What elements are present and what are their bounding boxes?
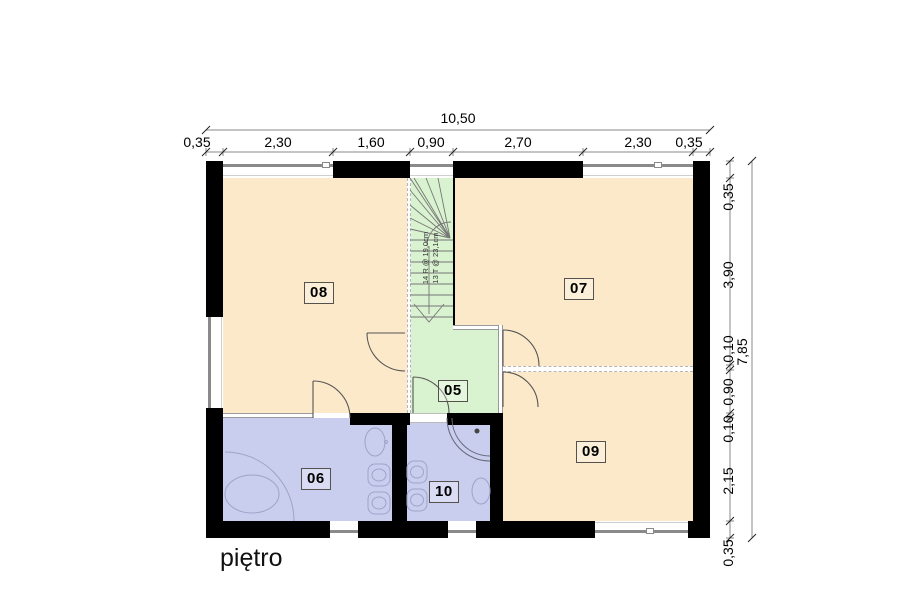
partition-08-06 xyxy=(223,413,313,418)
wall-int-06-10 xyxy=(392,413,407,521)
window-top-07 xyxy=(583,164,693,167)
window-bottom-09 xyxy=(595,530,688,533)
window-bottom-10 xyxy=(448,530,476,533)
window-mullion xyxy=(646,528,654,534)
wall-bottom-2 xyxy=(358,521,448,538)
window-mullion xyxy=(322,162,330,168)
window-sill xyxy=(583,175,693,176)
wall-bottom-1 xyxy=(206,521,330,538)
wall-int-10-top xyxy=(447,413,490,425)
dim-top-seg: 2,30 xyxy=(613,134,663,150)
wall-bottom-3 xyxy=(476,521,595,538)
dim-right-total: 7,85 xyxy=(734,327,750,377)
room-label-05: 05 xyxy=(438,380,468,402)
stair-side-wall xyxy=(453,178,455,325)
window-sill xyxy=(595,522,688,523)
dim-top-seg: 0,35 xyxy=(172,134,222,150)
wall-int-10-09 xyxy=(490,413,503,521)
wall-top-right xyxy=(453,161,583,178)
stair-note-treads: 13 T @ 23,1cm xyxy=(431,203,441,313)
dim-top-seg: 0,90 xyxy=(406,134,456,150)
dim-right-seg: 0,35 xyxy=(720,172,736,222)
room-label-10: 10 xyxy=(429,481,459,503)
dim-top-seg: 0,35 xyxy=(664,134,714,150)
dashed-wall-07-09 xyxy=(503,366,693,372)
window-mullion xyxy=(654,162,662,168)
window-top-08 xyxy=(223,164,333,167)
window-left-08 xyxy=(208,317,211,408)
floor-title: piętro xyxy=(220,544,283,573)
room-07-floor-lower xyxy=(503,325,693,366)
room-07-floor-strip xyxy=(455,178,498,325)
partition-hall-top xyxy=(453,325,498,330)
partition-hall-right xyxy=(498,325,503,413)
dim-right-seg: 0,10 xyxy=(720,404,736,454)
room-label-06: 06 xyxy=(301,468,331,490)
window-sill xyxy=(223,175,333,176)
dim-top-seg: 1,60 xyxy=(346,134,396,150)
wall-left-lower xyxy=(206,408,223,538)
room-07-floor xyxy=(498,178,693,325)
window-sill xyxy=(221,317,222,408)
stair-note-risers: 14 R @ 19,0cm xyxy=(421,203,431,313)
room-label-09: 09 xyxy=(576,441,606,463)
dim-right-seg: 3,90 xyxy=(720,250,736,300)
dim-top-seg: 2,30 xyxy=(253,134,303,150)
window-top-stairs xyxy=(410,164,453,167)
dashed-wall-08-stairs xyxy=(407,178,411,413)
window-sill xyxy=(410,175,453,176)
room-label-08: 08 xyxy=(304,282,334,304)
window-bottom-06 xyxy=(330,530,358,533)
room-10-floor xyxy=(407,418,490,521)
room-label-07: 07 xyxy=(564,278,594,300)
wall-left-upper xyxy=(206,161,223,317)
wall-top-mid xyxy=(333,161,410,178)
dim-top-total: 10,50 xyxy=(433,110,483,126)
dim-right-seg: 0,35 xyxy=(720,528,736,578)
wall-right xyxy=(693,161,710,538)
dim-right-seg: 2,15 xyxy=(720,456,736,506)
floor-plan: 08 07 05 06 10 09 14 R @ 19,0cm 13 T @ 2… xyxy=(0,0,900,600)
dim-top-seg: 2,70 xyxy=(493,134,543,150)
stair-note: 14 R @ 19,0cm 13 T @ 23,1cm xyxy=(421,203,443,313)
door-opening-hall-10 xyxy=(410,413,447,423)
